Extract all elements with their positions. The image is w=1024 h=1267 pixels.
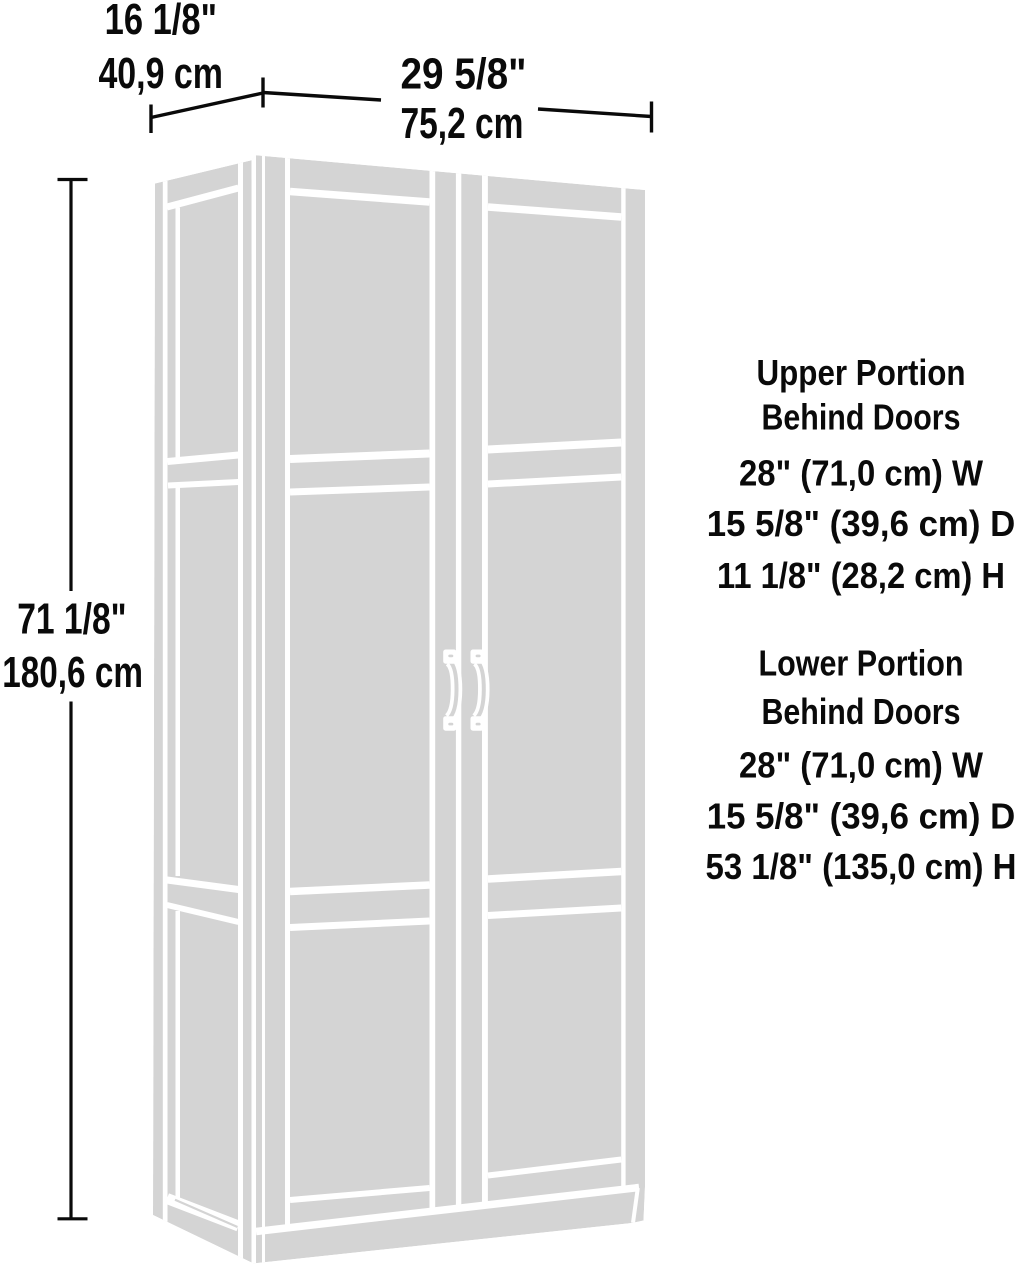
svg-text:28" (71,0 cm) W: 28" (71,0 cm) W	[739, 745, 983, 786]
svg-text:53 1/8" (135,0 cm) H: 53 1/8" (135,0 cm) H	[706, 846, 1017, 887]
svg-text:75,2 cm: 75,2 cm	[401, 99, 524, 148]
svg-text:11 1/8" (28,2 cm) H: 11 1/8" (28,2 cm) H	[717, 555, 1005, 596]
svg-text:71 1/8": 71 1/8"	[17, 595, 126, 644]
svg-text:Behind Doors: Behind Doors	[762, 396, 961, 437]
svg-text:Upper Portion: Upper Portion	[757, 352, 966, 393]
svg-text:180,6 cm: 180,6 cm	[2, 648, 143, 697]
svg-text:28" (71,0 cm) W: 28" (71,0 cm) W	[739, 453, 983, 494]
svg-text:Behind Doors: Behind Doors	[762, 691, 961, 732]
svg-text:16 1/8": 16 1/8"	[105, 0, 217, 44]
svg-text:40,9 cm: 40,9 cm	[98, 49, 223, 98]
svg-text:15 5/8" (39,6 cm) D: 15 5/8" (39,6 cm) D	[707, 795, 1016, 836]
svg-text:15 5/8" (39,6 cm) D: 15 5/8" (39,6 cm) D	[707, 503, 1016, 544]
svg-text:29 5/8": 29 5/8"	[401, 50, 527, 99]
svg-text:Lower Portion: Lower Portion	[759, 642, 964, 683]
